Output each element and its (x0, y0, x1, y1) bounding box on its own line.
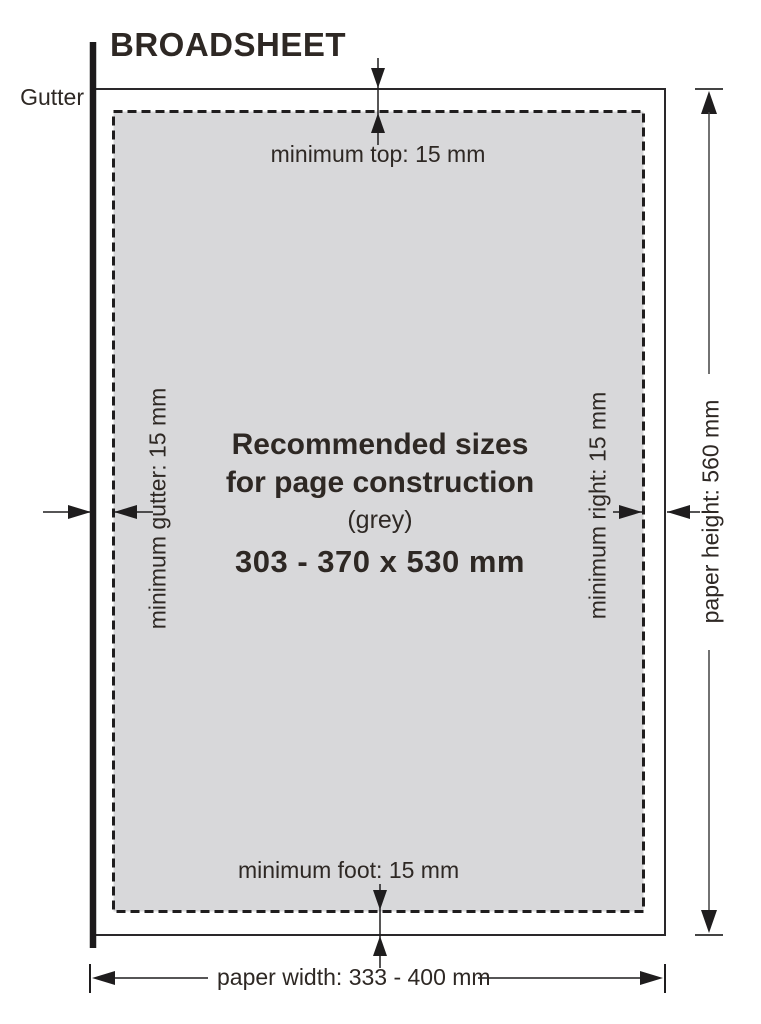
min-right-label: minimum right: 15 mm (585, 386, 612, 626)
broadsheet-diagram: BROADSHEET Gutter minimum top: 15 mm Rec… (0, 0, 761, 1024)
gutter-margin-arrows (43, 505, 153, 519)
center-line3: (grey) (190, 504, 570, 536)
gutter-label: Gutter (12, 84, 84, 111)
min-top-label: minimum top: 15 mm (258, 141, 498, 168)
page-title: BROADSHEET (110, 26, 346, 64)
center-line1: Recommended sizes (190, 426, 570, 464)
paper-height-label: paper height: 560 mm (698, 372, 725, 652)
paper-width-label: paper width: 333 - 400 mm (217, 964, 467, 991)
center-dimensions: 303 - 370 x 530 mm (190, 545, 570, 579)
min-gutter-label: minimum gutter: 15 mm (145, 378, 172, 640)
min-foot-label: minimum foot: 15 mm (238, 857, 522, 884)
center-line2: for page construction (190, 464, 570, 502)
center-annotation: Recommended sizes for page construction … (190, 426, 570, 579)
top-margin-arrows (371, 58, 385, 145)
